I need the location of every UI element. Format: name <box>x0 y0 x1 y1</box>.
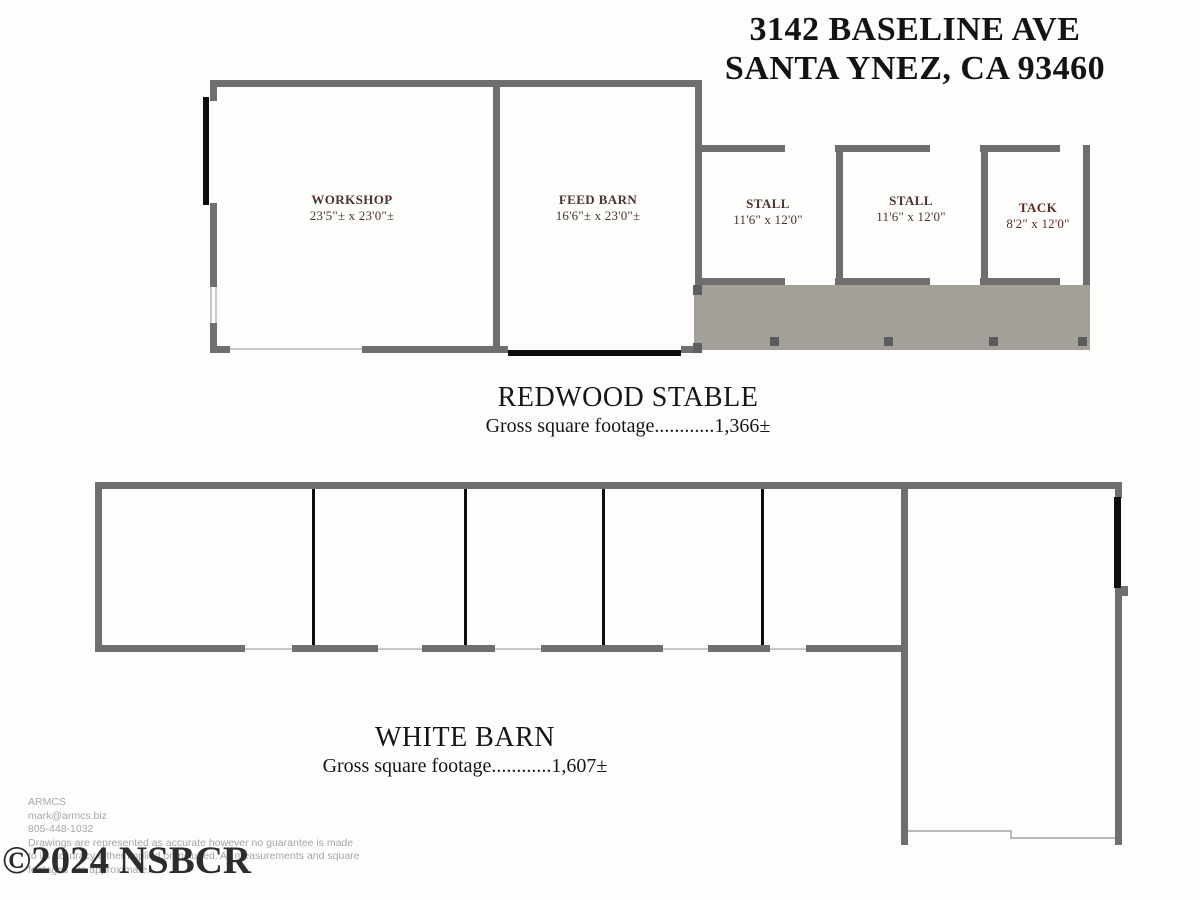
wall-segment <box>980 145 1060 152</box>
stall-partition <box>761 489 764 645</box>
porch-post <box>770 337 779 346</box>
door-threshold-line <box>495 648 541 650</box>
wall-segment <box>210 346 230 353</box>
wall-segment <box>292 645 378 652</box>
room-name: STALL <box>889 193 933 208</box>
door-threshold-line <box>378 648 422 650</box>
sliding-door-marker <box>508 350 681 356</box>
wall-segment <box>693 285 702 295</box>
address-line-2: SANTA YNEZ, CA 93460 <box>630 49 1200 88</box>
stall-partition <box>602 489 605 645</box>
stall-partition <box>312 489 315 645</box>
porch-post <box>1078 337 1087 346</box>
room-dimensions: 8'2" x 12'0" <box>1006 216 1069 231</box>
drafter-email: mark@armcs.biz <box>28 810 360 824</box>
copyright-watermark: ©2024 NSBCR <box>2 841 251 881</box>
building-footage: Gross square footage............1,366± <box>428 413 828 439</box>
address-line-1: 3142 BASELINE AVE <box>630 10 1200 49</box>
wall-segment <box>210 203 217 287</box>
room-label-feed-barn: FEED BARN 16'6"± x 23'0"± <box>498 192 698 224</box>
building-name: REDWOOD STABLE <box>428 383 828 413</box>
wall-segment <box>1115 588 1122 845</box>
property-address: 3142 BASELINE AVE SANTA YNEZ, CA 93460 <box>630 10 1200 88</box>
wall-segment <box>835 278 930 285</box>
door-threshold-line <box>245 648 292 650</box>
drafter-company: ARMCS <box>28 796 360 810</box>
room-dimensions: 16'6"± x 23'0"± <box>556 208 641 223</box>
wall-segment <box>362 346 508 353</box>
wall-segment <box>422 645 495 652</box>
redwood-stable-caption: REDWOOD STABLE Gross square footage.....… <box>428 383 828 439</box>
building-footage: Gross square footage............1,607± <box>265 753 665 779</box>
open-edge-line <box>1010 837 1115 839</box>
wall-segment <box>702 145 785 152</box>
porch-post <box>884 337 893 346</box>
wall-segment <box>1121 586 1128 596</box>
room-dimensions: 23'5"± x 23'0"± <box>310 208 395 223</box>
window-line <box>215 287 217 323</box>
wall-segment <box>693 343 702 353</box>
window-line <box>230 348 362 350</box>
wall-segment <box>836 145 843 285</box>
window-line <box>210 287 212 323</box>
door-threshold-line <box>770 648 806 650</box>
room-name: FEED BARN <box>559 192 637 207</box>
room-dimensions: 11'6" x 12'0" <box>876 209 945 224</box>
wall-segment <box>901 482 908 845</box>
wall-segment <box>702 278 785 285</box>
wall-segment <box>980 278 1060 285</box>
wall-segment <box>95 645 245 652</box>
wall-segment <box>210 80 702 87</box>
wall-segment <box>708 645 770 652</box>
open-edge-line <box>908 830 1012 832</box>
floor-plan-canvas: 3142 BASELINE AVE SANTA YNEZ, CA 93460 <box>0 0 1200 900</box>
door-threshold-line <box>663 648 708 650</box>
room-label-workshop: WORKSHOP 23'5"± x 23'0"± <box>252 192 452 224</box>
room-name: WORKSHOP <box>311 192 392 207</box>
building-name: WHITE BARN <box>265 723 665 753</box>
stall-partition <box>464 489 467 645</box>
wall-segment <box>835 145 930 152</box>
room-label-stall-2: STALL 11'6" x 12'0" <box>846 193 976 225</box>
wall-segment <box>210 80 217 101</box>
wall-segment <box>806 645 908 652</box>
drafter-phone: 805-448-1032 <box>28 823 360 837</box>
room-label-tack: TACK 8'2" x 12'0" <box>987 200 1089 232</box>
wall-segment <box>1115 482 1122 498</box>
porch-post <box>989 337 998 346</box>
room-label-stall-1: STALL 11'6" x 12'0" <box>703 196 833 228</box>
sliding-door-marker <box>203 97 209 205</box>
room-dimensions: 11'6" x 12'0" <box>733 212 802 227</box>
wall-segment <box>95 482 102 652</box>
white-barn-caption: WHITE BARN Gross square footage.........… <box>265 723 665 779</box>
wall-segment <box>95 482 1122 489</box>
sliding-door-marker <box>1114 497 1121 588</box>
room-name: TACK <box>1019 200 1057 215</box>
room-name: STALL <box>746 196 790 211</box>
wall-segment <box>541 645 663 652</box>
